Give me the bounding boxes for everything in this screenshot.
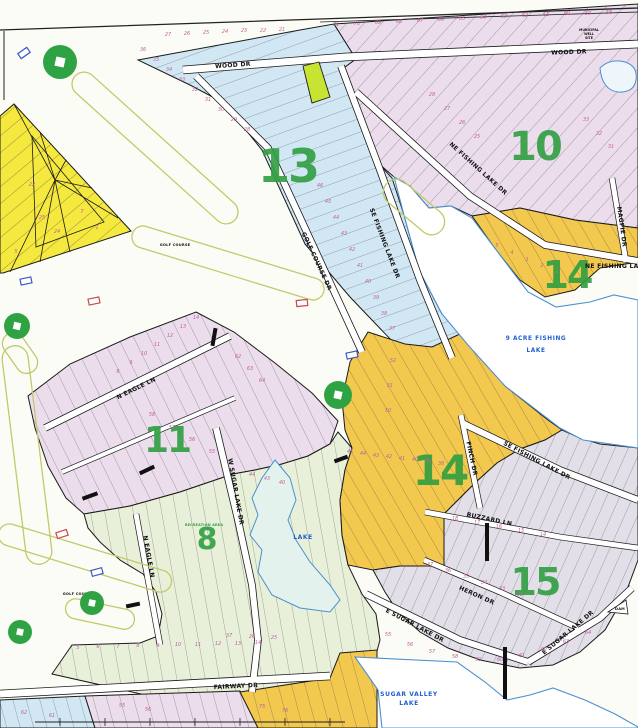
lot-number: 11 xyxy=(154,342,160,348)
lot-number: 65 xyxy=(459,16,465,22)
section-10-number: 10 xyxy=(509,124,561,170)
lot-number: 10 xyxy=(141,351,147,357)
lot-number: 15 xyxy=(518,528,524,534)
lot-number: 56 xyxy=(407,642,413,648)
small-lake-label: LAKE xyxy=(293,534,313,541)
lot-number: 39 xyxy=(425,459,431,465)
sugar-valley-lake-label-2: LAKE xyxy=(399,700,419,707)
lot-number: 31 xyxy=(205,97,211,103)
lot-number: 43 xyxy=(341,231,347,237)
lot-number: 33 xyxy=(499,586,505,592)
lot-number: 58 xyxy=(149,412,155,418)
lot-number: 8 xyxy=(116,369,119,375)
lot-number: 50 xyxy=(385,408,391,414)
lot-number: 36 xyxy=(140,47,146,53)
lot-number: 44 xyxy=(360,451,366,457)
lot-number: 61 xyxy=(519,653,525,659)
lot-number: 61 xyxy=(543,12,549,18)
sugar-valley-lake-label-1: SUGAR VALLEY xyxy=(380,691,438,698)
lot-number: 4 xyxy=(510,250,513,256)
section-8-number: 8 xyxy=(197,522,217,557)
lot-number: 24 xyxy=(222,29,228,35)
lot-number: 56 xyxy=(189,437,195,443)
lot-number: 39 xyxy=(373,295,379,301)
lot-number: 5 xyxy=(495,243,498,249)
lot-number: 67 xyxy=(417,18,424,24)
lot-number: 45 xyxy=(325,199,331,205)
lot-number: 64 xyxy=(585,630,591,636)
lot-number: 44 xyxy=(249,472,255,478)
lot-number: 56 xyxy=(145,707,151,713)
lot-number: 62 xyxy=(235,354,241,360)
lot-number: 28 xyxy=(429,92,435,98)
lot-number: 21 xyxy=(279,27,285,33)
lot-number: 59 xyxy=(585,11,591,17)
lot-number: 25 xyxy=(39,215,45,221)
lot-number: 45 xyxy=(347,449,353,455)
lot-number: 35 xyxy=(153,57,159,63)
lot-number: 40 xyxy=(412,457,418,463)
lot-number: 55 xyxy=(385,632,391,638)
lot-number: 24 xyxy=(54,229,60,235)
black-bar-mark xyxy=(485,523,489,561)
lot-number: 38 xyxy=(381,311,387,317)
lot-number: 59 xyxy=(475,657,481,663)
well-site-line3: SITE xyxy=(585,36,593,40)
lot-number: 1 xyxy=(555,269,558,275)
lot-number: 43 xyxy=(373,453,379,459)
lot-number: 26 xyxy=(459,120,465,126)
lot-number: 22 xyxy=(260,28,266,34)
lot-number: 52 xyxy=(390,358,396,364)
lot-number: 63 xyxy=(563,639,569,645)
lot-number: 43 xyxy=(264,476,270,482)
lot-number: 37 xyxy=(226,633,233,639)
lot-number: 71 xyxy=(333,22,339,28)
lot-number: 9 xyxy=(156,643,159,649)
lot-number: 11 xyxy=(195,642,201,648)
lot-number: 42 xyxy=(386,454,392,460)
lot-number: 37 xyxy=(427,562,434,568)
lot-number: 62 xyxy=(541,647,547,653)
street-label-ne-fishing-la: NE FISHING LA xyxy=(585,263,638,270)
section-13-number: 13 xyxy=(258,139,318,193)
lot-number: 33 xyxy=(583,117,589,123)
golf-tee-icon xyxy=(8,620,32,644)
lot-number: 76 xyxy=(282,708,288,714)
lot-number: 62 xyxy=(522,13,528,19)
lot-number: 17 xyxy=(474,520,481,526)
lot-number: 30 xyxy=(218,107,224,113)
nine-acre-lake-label-2: LAKE xyxy=(526,348,545,354)
lot-number: 70 xyxy=(354,21,360,27)
lot-number: 61 xyxy=(49,713,55,719)
lot-number: 14 xyxy=(193,315,199,321)
lot-number: 29 xyxy=(231,117,237,123)
lot-number: 3 xyxy=(525,257,528,263)
lot-number: 46 xyxy=(317,183,323,189)
lot-number: 14 xyxy=(540,532,546,538)
lot-number: 58 xyxy=(606,10,612,16)
lot-number: 60 xyxy=(497,657,503,663)
lot-number: 31 xyxy=(608,144,614,150)
lot-number: 14 xyxy=(255,640,261,646)
black-bar-mark xyxy=(503,647,507,699)
lot-number: 69 xyxy=(375,20,381,26)
lot-number: 40 xyxy=(279,480,285,486)
lot-number: 41 xyxy=(399,456,405,462)
lot-number: 64 xyxy=(259,378,265,384)
plat-map-page: DAM 13 10 14 11 14 8 15 WOOD DR WOOD DR … xyxy=(0,0,638,728)
lot-number: 5 xyxy=(76,645,79,651)
lot-number: 25 xyxy=(203,30,209,36)
lot-number: 26 xyxy=(184,31,190,37)
lot-number: 8 xyxy=(136,643,139,649)
lot-number: 9 xyxy=(129,360,132,366)
lot-number: 23 xyxy=(241,28,247,34)
lot-number: 57 xyxy=(429,649,436,655)
lot-number: 25 xyxy=(271,635,277,641)
lot-number: 51 xyxy=(387,383,393,389)
golf-tee-icon xyxy=(43,45,77,79)
lot-number: 41 xyxy=(357,263,363,269)
lot-number: 35 xyxy=(463,574,469,580)
lot-number: 25 xyxy=(474,134,480,140)
lot-number: 66 xyxy=(438,17,444,23)
section-11-number: 11 xyxy=(144,420,190,461)
lot-number: 32 xyxy=(596,131,602,137)
lot-number: 55 xyxy=(119,703,125,709)
lot-number: 22 xyxy=(29,182,35,188)
lot-number: 34 xyxy=(481,580,487,586)
golf-tee-icon xyxy=(80,591,104,615)
golf-course-label-upper: GOLF COURSE xyxy=(160,243,191,247)
lot-number: 28 xyxy=(244,127,250,133)
recreation-area-label: RECREATION AREA xyxy=(185,523,224,527)
street-label-wood-dr-e: WOOD DR xyxy=(551,48,587,56)
lot-number: 32 xyxy=(192,87,198,93)
lot-number: 2 xyxy=(540,263,543,269)
lot-number: 13 xyxy=(180,324,186,330)
lot-number: 32 xyxy=(517,592,523,598)
red-tee-box-icon xyxy=(296,299,308,306)
lot-number: 62 xyxy=(21,710,27,716)
lot-number: 10 xyxy=(175,642,181,648)
lot-number: 75 xyxy=(259,704,265,710)
lot-number: 36 xyxy=(445,568,451,574)
lot-number: 38 xyxy=(438,461,444,467)
bottom-strip-blue-lots xyxy=(0,696,95,728)
lot-number: 33 xyxy=(179,77,185,83)
lot-number: 58 xyxy=(452,654,458,660)
lot-number: 68 xyxy=(396,19,402,25)
lot-number: 13 xyxy=(235,641,241,647)
lot-number: 37 xyxy=(389,326,396,332)
lot-number: 16 xyxy=(496,524,502,530)
lot-number: 42 xyxy=(349,247,355,253)
lot-number: 5 xyxy=(14,249,17,255)
golf-tee-icon xyxy=(4,313,30,339)
lot-number: 55 xyxy=(209,449,215,455)
section-14-central-number: 14 xyxy=(413,446,468,495)
golf-tee-icon xyxy=(324,381,352,409)
lot-number: 57 xyxy=(169,425,176,431)
lot-number: 6 xyxy=(96,644,99,650)
plat-map: DAM 13 10 14 11 14 8 15 WOOD DR WOOD DR … xyxy=(0,0,638,728)
lot-number: 63 xyxy=(501,14,507,20)
lot-number: 63 xyxy=(247,366,253,372)
lot-number: 44 xyxy=(333,215,339,221)
lot-number: 1 xyxy=(95,225,98,231)
dam-label: DAM xyxy=(615,607,625,611)
lot-number: 64 xyxy=(480,15,486,21)
lot-number: 60 xyxy=(564,11,570,17)
lot-number: 34 xyxy=(166,67,172,73)
lot-number: 27 xyxy=(165,32,172,38)
lot-number: 12 xyxy=(215,641,221,647)
lot-number: 12 xyxy=(167,333,173,339)
lot-number: 26 xyxy=(249,634,255,640)
lot-number: 18 xyxy=(452,516,458,522)
section-14-ne-number: 14 xyxy=(543,253,592,297)
lot-number: 27 xyxy=(444,106,451,112)
lot-number: 40 xyxy=(365,279,371,285)
nine-acre-lake-label-1: 9 ACRE FISHING xyxy=(506,336,567,342)
